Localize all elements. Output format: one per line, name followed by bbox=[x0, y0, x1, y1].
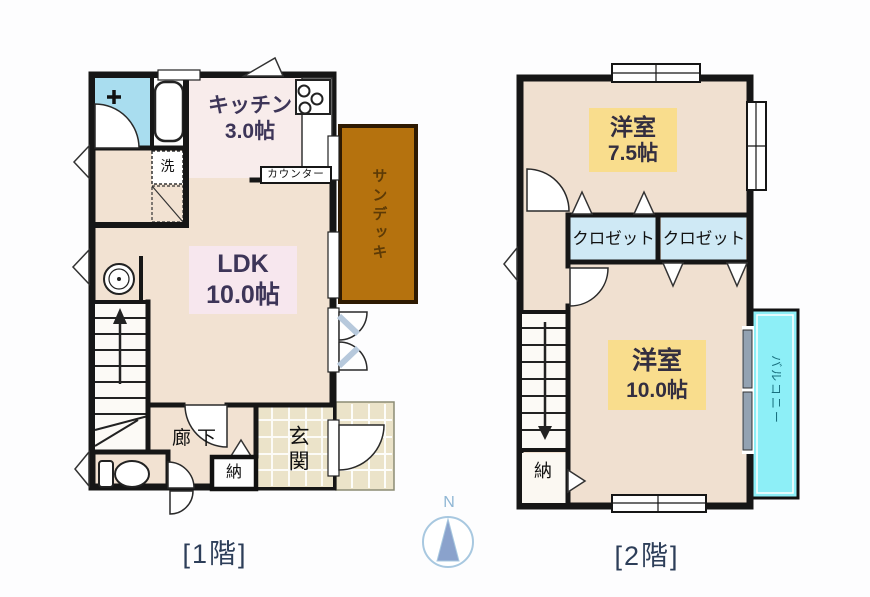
balcony-sliding-doors bbox=[742, 326, 754, 454]
window-flap bbox=[504, 248, 517, 280]
window-flap bbox=[74, 146, 89, 178]
closet-right-label: クロゼット bbox=[661, 218, 747, 260]
entrance-door-gap bbox=[328, 420, 339, 476]
washbasin bbox=[104, 264, 134, 294]
bedroom-b-size: 10.0帖 bbox=[626, 378, 688, 404]
window bbox=[328, 232, 339, 298]
window-flap bbox=[75, 452, 89, 486]
kitchen-size: 3.0帖 bbox=[225, 119, 275, 145]
ldk-name: LDK bbox=[217, 249, 268, 280]
washing-machine-label: 洗 bbox=[151, 150, 184, 184]
bedroom-a-size: 7.5帖 bbox=[608, 141, 658, 167]
french-door-gap bbox=[328, 308, 339, 372]
hallway-label: 廊下 bbox=[153, 424, 235, 454]
bedroom-a-name: 洋室 bbox=[610, 113, 656, 142]
entrance-label: 玄関 bbox=[276, 412, 318, 488]
floorplan-drawing bbox=[0, 0, 870, 597]
counter-label: カウンター bbox=[260, 166, 332, 184]
closet-left-label: クロゼット bbox=[570, 218, 657, 260]
sundeck-label: サンデッキ bbox=[356, 134, 400, 296]
floor2-storage-label: 納 bbox=[520, 452, 566, 490]
floor2-caption: [2階] bbox=[582, 536, 712, 578]
floor1-caption: [1階] bbox=[150, 534, 280, 576]
bedroom-b-name: 洋室 bbox=[632, 346, 682, 377]
awning-window-flap bbox=[244, 58, 283, 76]
bathtub bbox=[155, 82, 183, 141]
ldk-label: LDK 10.0帖 bbox=[189, 246, 297, 314]
window-flap bbox=[73, 250, 89, 284]
balcony-label: バルコニー bbox=[768, 330, 784, 450]
bedroom-a-label: 洋室 7.5帖 bbox=[589, 108, 677, 172]
toilet-bowl bbox=[99, 461, 149, 487]
compass-north-label: N bbox=[437, 494, 461, 512]
exterior-door-arc bbox=[170, 491, 193, 514]
floorplan-page: キッチン 3.0帖 LDK 10.0帖 カウンター 洗 廊下 納 玄関 サンデッ… bbox=[0, 0, 870, 597]
window bbox=[158, 70, 200, 80]
kitchen-name: キッチン bbox=[208, 93, 292, 119]
bedroom-b-label: 洋室 10.0帖 bbox=[608, 340, 706, 410]
kitchen-label: キッチン 3.0帖 bbox=[194, 88, 306, 150]
floor1-storage-label: 納 bbox=[212, 457, 256, 489]
compass bbox=[423, 517, 473, 567]
ldk-size: 10.0帖 bbox=[206, 280, 280, 311]
